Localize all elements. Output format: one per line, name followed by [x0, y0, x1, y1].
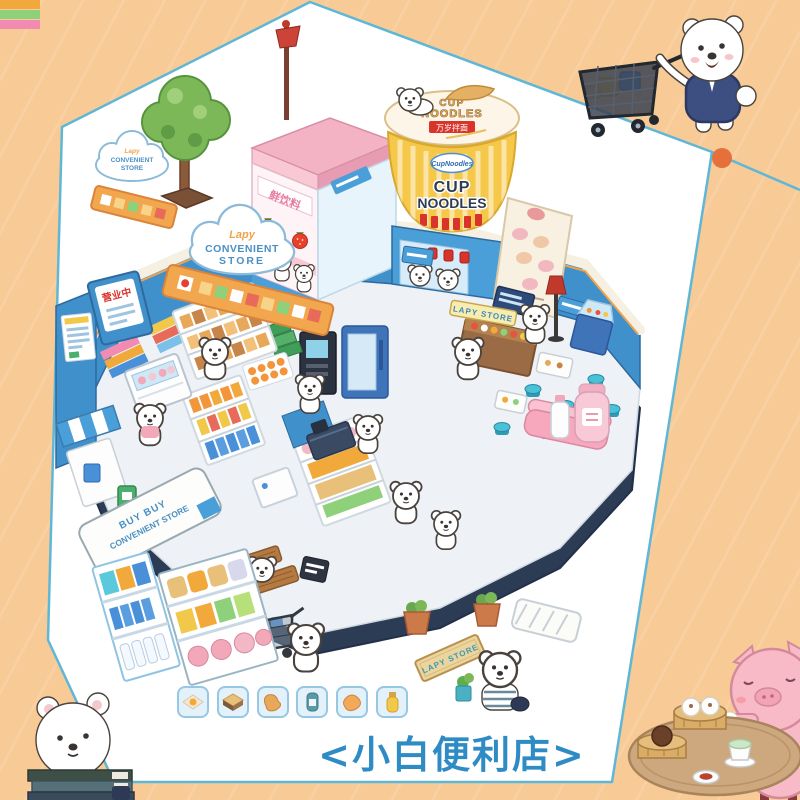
cup-body-title1: CUP: [434, 179, 471, 196]
cloud-large-line1: CONVENIENT: [205, 243, 279, 255]
shopper-bear: [288, 624, 324, 672]
cloud-small-line1: CONVENIENT: [111, 157, 154, 164]
item-tile-fried-snack: [258, 687, 288, 717]
pink-apron: [141, 426, 159, 438]
item-tile-canned-drink: [297, 687, 327, 717]
bear-head: [681, 16, 743, 81]
blue-box: [84, 464, 100, 482]
planter: [474, 592, 500, 626]
item-tile-egg-dish: [178, 687, 208, 717]
steamer-basket: [674, 697, 726, 729]
cup-lid-badge-text: 万岁拌面: [436, 123, 468, 133]
pig-dimsum-scene: [629, 642, 800, 800]
caption-title: <小白便利店>: [318, 733, 586, 777]
bear-paw: [736, 86, 756, 106]
planter: [404, 600, 430, 634]
sauce-dish: [693, 771, 719, 784]
book-stack: [28, 770, 134, 800]
cloud-large-line2: STORE: [219, 255, 265, 267]
pink-jar: [575, 384, 609, 442]
hand-bag: [511, 697, 529, 711]
cup-body-title2: NOODLES: [417, 195, 486, 211]
pencil-case: [112, 786, 130, 800]
item-tile-sandwich: [218, 687, 248, 717]
bear-head: [36, 693, 110, 777]
accent-dot: [712, 148, 732, 168]
cloud-small-line2: STORE: [121, 165, 144, 172]
scene-svg: 鲜饮料: [0, 0, 800, 800]
cloud-large-script: Lapy: [229, 229, 256, 241]
drink-cooler: [342, 326, 388, 398]
cloud-small-script: Lapy: [124, 148, 140, 155]
a-frame-sign: [299, 556, 329, 583]
shopper-bear: [294, 265, 314, 292]
item-tile-milk-tea-bottle: [377, 687, 407, 717]
illustration-canvas: 鲜饮料: [0, 0, 800, 800]
cup-logo-text: CupNoodles: [431, 161, 472, 168]
hanging-sign: [402, 246, 434, 266]
item-tile-bread-bun: [337, 687, 367, 717]
